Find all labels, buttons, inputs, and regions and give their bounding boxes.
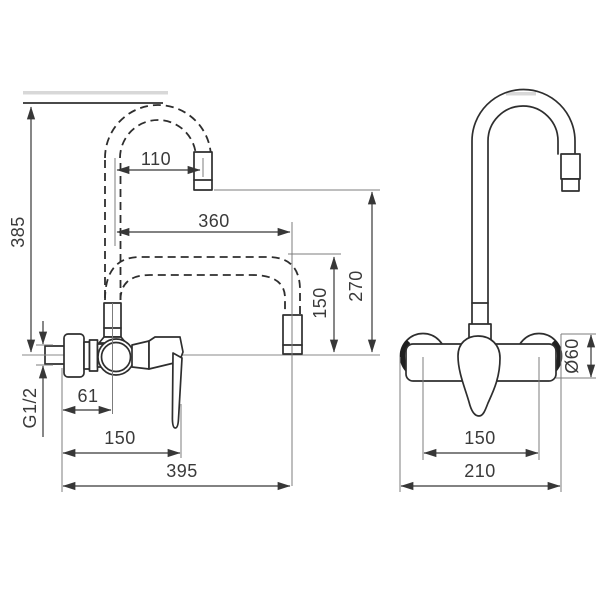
dimension-270: 270 (346, 192, 372, 352)
outlet-front-body (561, 154, 580, 179)
body-ball-inner (102, 343, 131, 372)
dimension-61: 61 (63, 386, 111, 410)
dimension-210: 210 (401, 461, 560, 486)
dim-label-270: 270 (346, 270, 366, 302)
dimension-385: 385 (8, 107, 31, 352)
dimension-360: 360 (117, 211, 290, 232)
dimension-150-front: 150 (424, 428, 538, 453)
spout-lowered-phantom (105, 257, 300, 314)
wall-rosette-side (64, 334, 84, 377)
spout-raised-phantom (105, 105, 211, 300)
spout-outlet-upper (194, 152, 212, 190)
dimension-150-bottom: 150 (63, 428, 180, 453)
dim-label-61: 61 (77, 386, 98, 406)
dim-label-g12: G1/2 (20, 387, 40, 428)
dim-label-360: 360 (198, 211, 230, 231)
faucet-dimension-drawing: 385 110 360 150 270 G1/2 61 (0, 0, 600, 600)
technical-drawing-page: 385 110 360 150 270 G1/2 61 (0, 0, 600, 600)
dim-label-150f: 150 (464, 428, 496, 448)
dimension-395: 395 (63, 461, 290, 486)
faucet-body-side (64, 303, 183, 428)
dimension-g12: G1/2 (20, 321, 53, 437)
dim-label-395: 395 (166, 461, 198, 481)
spout-lowered-inner (121, 275, 286, 314)
dimension-d60: Ø60 (562, 335, 591, 377)
spout-top-shadow (506, 92, 536, 96)
handle-front (458, 336, 500, 416)
dim-label-110: 110 (141, 149, 171, 169)
gooseneck-spout (469, 90, 580, 346)
dim-label-210: 210 (464, 461, 496, 481)
dim-label-150b: 150 (104, 428, 136, 448)
outlet-front-aerator (562, 179, 579, 191)
spout-inner-edge (488, 106, 558, 345)
dim-label-385: 385 (8, 216, 28, 248)
side-view: 385 110 360 150 270 G1/2 61 (8, 91, 380, 492)
dim-label-150v: 150 (310, 287, 330, 319)
body-neck (132, 341, 149, 369)
front-view: Ø60 150 210 (400, 90, 596, 493)
spout-lowered-outer (105, 257, 300, 314)
top-reference-shadow (23, 91, 168, 95)
dim-label-d60: Ø60 (562, 338, 582, 374)
union-nut-step2 (90, 340, 98, 371)
dimension-110: 110 (117, 149, 200, 170)
dimension-150-vertical: 150 (310, 257, 334, 352)
